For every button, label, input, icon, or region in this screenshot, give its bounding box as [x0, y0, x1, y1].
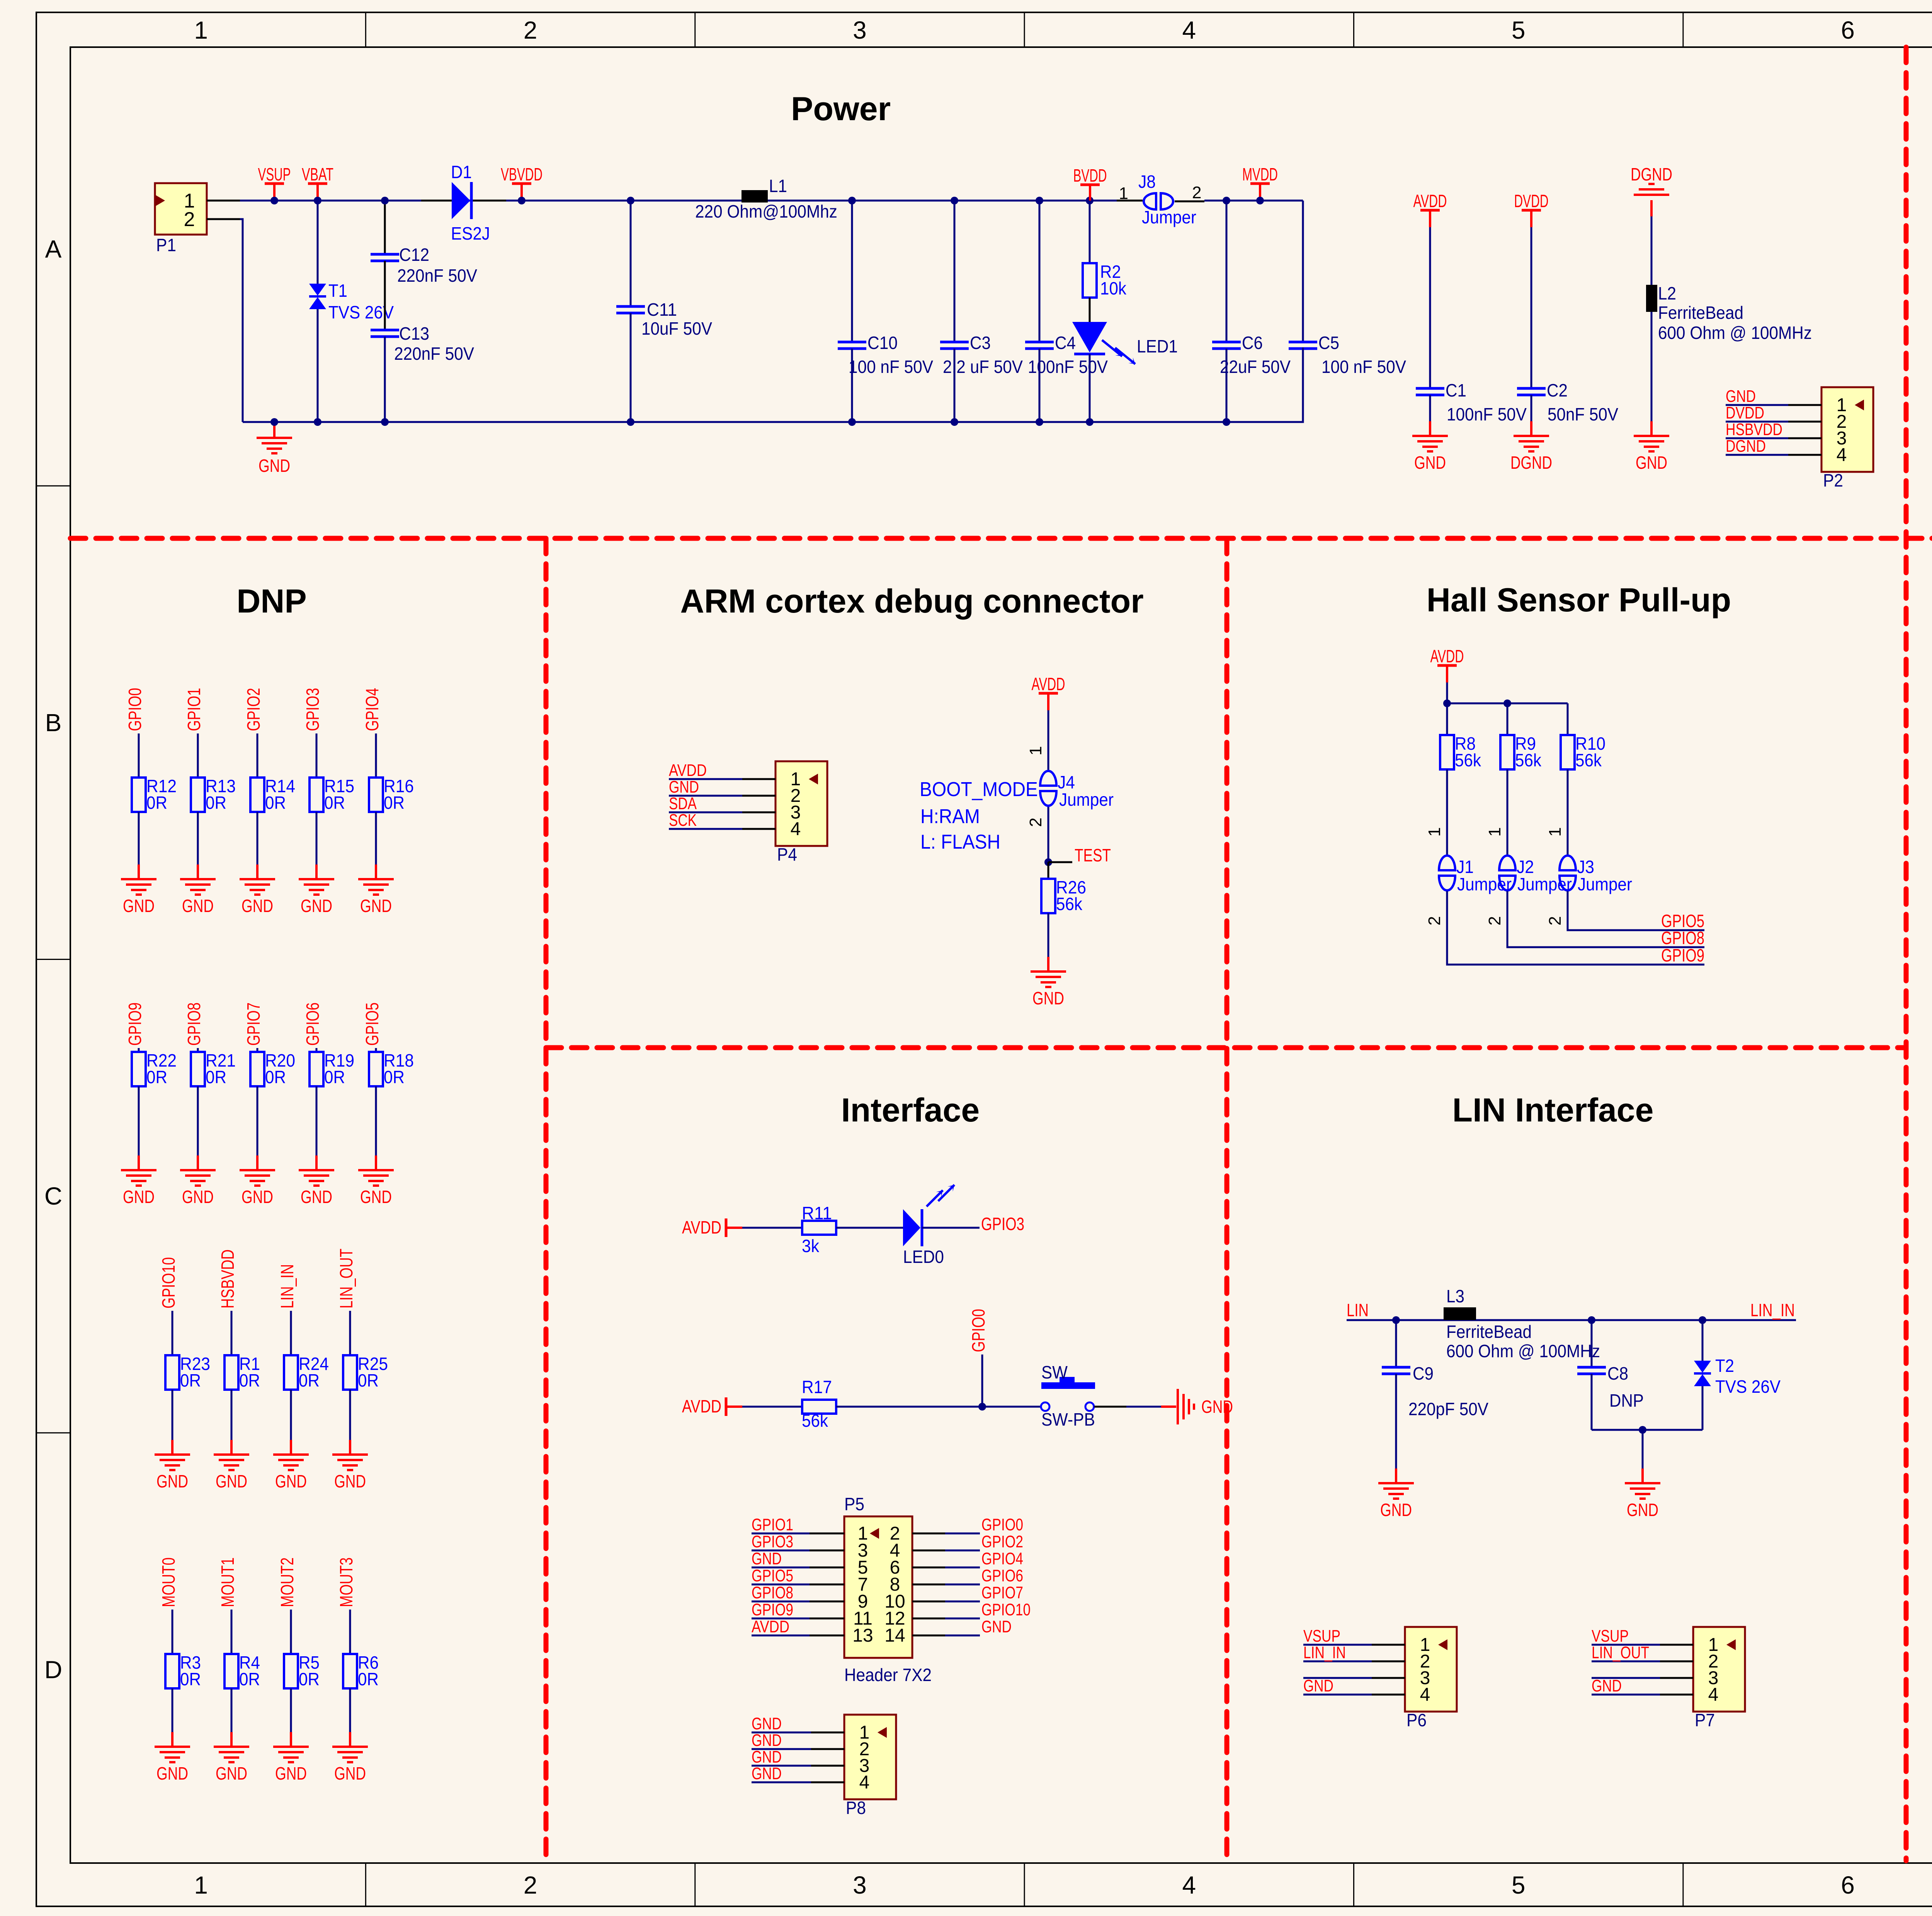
svg-text:MOUT1: MOUT1	[218, 1557, 238, 1607]
svg-text:GND: GND	[275, 1471, 307, 1491]
svg-text:2: 2	[1192, 183, 1201, 202]
svg-text:GPIO1: GPIO1	[752, 1515, 793, 1534]
svg-text:Header 7X2: Header 7X2	[844, 1665, 932, 1685]
svg-text:GND: GND	[1726, 387, 1756, 406]
svg-text:56k: 56k	[802, 1411, 828, 1431]
svg-text:GPIO9: GPIO9	[752, 1600, 793, 1619]
svg-text:HSBVDD: HSBVDD	[218, 1249, 238, 1309]
svg-text:GND: GND	[156, 1763, 188, 1783]
svg-text:50nF 50V: 50nF 50V	[1548, 404, 1618, 424]
svg-text:GPIO1: GPIO1	[184, 688, 204, 731]
svg-text:C13: C13	[399, 323, 429, 344]
svg-text:HSBVDD: HSBVDD	[1726, 420, 1782, 439]
svg-text:P2: P2	[1823, 470, 1843, 490]
svg-text:P5: P5	[844, 1494, 864, 1514]
svg-text:GND: GND	[241, 896, 273, 916]
svg-text:MVDD: MVDD	[1242, 164, 1278, 184]
svg-text:6: 6	[1841, 16, 1855, 44]
svg-text:GND: GND	[1414, 453, 1446, 473]
svg-text:GND: GND	[182, 1187, 214, 1207]
svg-text:100 nF 50V: 100 nF 50V	[849, 357, 933, 377]
svg-text:5: 5	[1512, 1871, 1526, 1899]
svg-text:R17: R17	[802, 1377, 832, 1397]
svg-text:22uF 50V: 22uF 50V	[1220, 357, 1291, 377]
svg-text:3k: 3k	[802, 1236, 820, 1256]
svg-text:4: 4	[791, 819, 801, 839]
svg-text:2: 2	[524, 16, 537, 44]
svg-text:C6: C6	[1242, 333, 1263, 353]
svg-text:13: 13	[852, 1625, 873, 1646]
svg-text:Jumper: Jumper	[1457, 874, 1512, 894]
svg-text:1: 1	[1026, 746, 1045, 756]
svg-text:600 Ohm @ 100MHz: 600 Ohm @ 100MHz	[1446, 1341, 1600, 1361]
svg-text:MOUT3: MOUT3	[336, 1557, 356, 1607]
svg-text:220pF 50V: 220pF 50V	[1408, 1399, 1488, 1419]
svg-text:DNP: DNP	[1609, 1390, 1644, 1411]
svg-text:600 Ohm @ 100MHz: 600 Ohm @ 100MHz	[1658, 323, 1812, 343]
svg-text:DGND: DGND	[1631, 164, 1672, 184]
svg-text:VBVDD: VBVDD	[501, 164, 543, 184]
svg-text:Power: Power	[791, 90, 891, 128]
svg-text:MOUT0: MOUT0	[158, 1557, 179, 1607]
svg-text:VSUP: VSUP	[258, 164, 291, 184]
svg-text:GND: GND	[156, 1471, 188, 1491]
svg-text:P6: P6	[1406, 1710, 1427, 1730]
svg-text:T2: T2	[1715, 1356, 1734, 1376]
svg-text:GND: GND	[275, 1763, 307, 1783]
svg-text:0R: 0R	[358, 1370, 379, 1390]
svg-text:GPIO7: GPIO7	[981, 1583, 1023, 1602]
svg-text:GPIO0: GPIO0	[981, 1515, 1023, 1534]
svg-text:6: 6	[1841, 1871, 1855, 1899]
svg-text:GND: GND	[216, 1763, 247, 1783]
svg-text:LED1: LED1	[1137, 336, 1178, 356]
svg-text:0R: 0R	[384, 1067, 405, 1087]
svg-text:FerriteBead: FerriteBead	[1658, 303, 1743, 323]
svg-text:10k: 10k	[1100, 278, 1127, 298]
svg-text:P7: P7	[1695, 1710, 1715, 1730]
svg-text:GND: GND	[182, 896, 214, 916]
svg-text:P8: P8	[846, 1798, 866, 1818]
svg-text:AVDD: AVDD	[752, 1617, 789, 1636]
svg-text:GND: GND	[1380, 1500, 1412, 1520]
svg-text:220nF 50V: 220nF 50V	[397, 265, 477, 286]
svg-text:AVDD: AVDD	[1413, 191, 1447, 211]
svg-text:Jumper: Jumper	[1517, 874, 1572, 894]
svg-text:0R: 0R	[206, 793, 226, 813]
svg-text:GND: GND	[123, 1187, 155, 1207]
svg-text:Interface: Interface	[841, 1092, 980, 1129]
svg-text:GND: GND	[1636, 453, 1667, 473]
svg-text:L2: L2	[1658, 283, 1676, 303]
svg-text:LIN_IN: LIN_IN	[1303, 1643, 1346, 1662]
svg-text:C: C	[44, 1182, 62, 1210]
svg-text:DVDD: DVDD	[1726, 403, 1764, 422]
svg-text:B: B	[45, 709, 62, 737]
svg-text:GPIO7: GPIO7	[243, 1002, 264, 1046]
svg-text:GPIO10: GPIO10	[158, 1257, 179, 1309]
svg-text:GPIO2: GPIO2	[981, 1532, 1023, 1551]
svg-text:L3: L3	[1446, 1286, 1464, 1306]
svg-text:C5: C5	[1318, 333, 1339, 353]
svg-text:GND: GND	[752, 1731, 782, 1750]
svg-text:GPIO8: GPIO8	[184, 1002, 204, 1046]
svg-text:GPIO5: GPIO5	[752, 1566, 793, 1585]
svg-text:AVDD: AVDD	[682, 1217, 721, 1237]
svg-text:GND: GND	[669, 778, 699, 796]
svg-text:0R: 0R	[384, 793, 405, 813]
svg-text:0R: 0R	[239, 1669, 260, 1689]
svg-text:DGND: DGND	[1726, 437, 1766, 456]
svg-text:GND: GND	[1627, 1500, 1658, 1520]
svg-text:GND: GND	[334, 1471, 366, 1491]
svg-text:L1: L1	[769, 176, 787, 196]
svg-text:L: FLASH: L: FLASH	[920, 831, 1000, 853]
svg-text:GPIO6: GPIO6	[981, 1566, 1023, 1585]
svg-text:GND: GND	[259, 456, 290, 476]
svg-text:C4: C4	[1055, 333, 1076, 353]
svg-text:1: 1	[1546, 827, 1565, 837]
svg-text:AVDD: AVDD	[669, 761, 707, 780]
svg-text:SDA: SDA	[669, 794, 697, 813]
svg-text:LIN Interface: LIN Interface	[1452, 1092, 1654, 1129]
svg-text:56k: 56k	[1455, 750, 1481, 770]
svg-text:LIN_OUT: LIN_OUT	[336, 1249, 356, 1309]
svg-text:3: 3	[853, 1871, 867, 1899]
svg-text:4: 4	[1708, 1685, 1719, 1705]
svg-text:TEST: TEST	[1075, 845, 1111, 865]
svg-text:0R: 0R	[180, 1370, 201, 1390]
svg-text:GND: GND	[752, 1764, 782, 1783]
svg-text:LED0: LED0	[903, 1247, 944, 1267]
svg-text:GPIO6: GPIO6	[303, 1002, 323, 1046]
svg-text:GND: GND	[1201, 1397, 1233, 1417]
svg-text:TVS 26V: TVS 26V	[1715, 1377, 1781, 1397]
svg-text:C8: C8	[1607, 1363, 1628, 1383]
svg-text:BOOT_MODE: BOOT_MODE	[920, 778, 1038, 801]
svg-text:AVDD: AVDD	[1032, 674, 1065, 694]
svg-text:GPIO5: GPIO5	[362, 1002, 382, 1046]
svg-text:GND: GND	[334, 1763, 366, 1783]
svg-text:DNP: DNP	[236, 583, 307, 620]
svg-text:4: 4	[859, 1772, 870, 1793]
svg-text:Hall Sensor Pull-up: Hall Sensor Pull-up	[1427, 582, 1731, 619]
svg-text:0R: 0R	[324, 1067, 345, 1087]
svg-text:1: 1	[1485, 827, 1504, 837]
svg-text:2: 2	[524, 1871, 537, 1899]
svg-text:GND: GND	[752, 1748, 782, 1766]
svg-text:GND: GND	[1032, 988, 1064, 1008]
svg-text:AVDD: AVDD	[1430, 646, 1464, 666]
svg-text:Jumper: Jumper	[1578, 874, 1632, 894]
svg-text:GND: GND	[1303, 1676, 1333, 1695]
svg-text:LIN_IN: LIN_IN	[277, 1264, 297, 1309]
svg-text:0R: 0R	[358, 1669, 379, 1689]
svg-text:0R: 0R	[239, 1370, 260, 1390]
svg-text:3: 3	[853, 16, 867, 44]
svg-text:GPIO3: GPIO3	[752, 1532, 793, 1551]
svg-text:Jumper: Jumper	[1142, 207, 1196, 227]
svg-text:0R: 0R	[206, 1067, 226, 1087]
svg-text:FerriteBead: FerriteBead	[1446, 1322, 1532, 1342]
svg-text:D: D	[44, 1656, 62, 1683]
svg-text:0R: 0R	[324, 793, 345, 813]
svg-text:GND: GND	[981, 1617, 1012, 1636]
svg-text:SW-PB: SW-PB	[1041, 1409, 1095, 1429]
svg-text:GPIO9: GPIO9	[125, 1002, 145, 1046]
svg-text:GPIO0: GPIO0	[125, 688, 145, 731]
svg-text:56k: 56k	[1575, 750, 1602, 770]
svg-text:GND: GND	[360, 896, 392, 916]
svg-text:C12: C12	[399, 245, 429, 265]
svg-text:GPIO3: GPIO3	[981, 1214, 1024, 1234]
svg-text:P1: P1	[156, 235, 176, 255]
svg-text:GPIO9: GPIO9	[1661, 945, 1704, 965]
svg-text:GND: GND	[1592, 1676, 1622, 1695]
svg-text:1: 1	[1119, 184, 1128, 203]
svg-text:1: 1	[194, 1871, 208, 1899]
svg-text:C9: C9	[1413, 1363, 1434, 1383]
svg-text:D1: D1	[451, 162, 472, 182]
svg-text:1: 1	[1425, 827, 1444, 837]
svg-text:10uF 50V: 10uF 50V	[641, 318, 712, 339]
svg-text:GPIO8: GPIO8	[752, 1583, 793, 1602]
svg-text:56k: 56k	[1515, 750, 1542, 770]
svg-text:5: 5	[1512, 16, 1526, 44]
svg-text:0R: 0R	[146, 1067, 167, 1087]
svg-text:1: 1	[194, 16, 208, 44]
svg-text:AVDD: AVDD	[682, 1396, 721, 1416]
svg-text:GPIO10: GPIO10	[981, 1600, 1031, 1619]
svg-text:2: 2	[1485, 916, 1504, 926]
svg-text:Jumper: Jumper	[1059, 790, 1114, 810]
svg-text:LIN_OUT: LIN_OUT	[1592, 1643, 1649, 1662]
svg-text:C10: C10	[867, 333, 898, 353]
svg-text:MOUT2: MOUT2	[277, 1557, 297, 1607]
svg-text:2: 2	[184, 208, 195, 231]
svg-text:0R: 0R	[265, 1067, 286, 1087]
svg-text:0R: 0R	[299, 1370, 320, 1390]
svg-text:4: 4	[1420, 1685, 1430, 1705]
svg-text:GND: GND	[123, 896, 155, 916]
svg-text:T1: T1	[328, 281, 347, 301]
svg-text:J8: J8	[1138, 172, 1156, 192]
svg-text:4: 4	[1182, 16, 1196, 44]
svg-text:GPIO4: GPIO4	[362, 688, 382, 731]
svg-text:GPIO0: GPIO0	[968, 1309, 988, 1352]
svg-text:LIN: LIN	[1347, 1300, 1369, 1320]
svg-text:A: A	[45, 235, 62, 263]
svg-text:220 Ohm@100Mhz: 220 Ohm@100Mhz	[695, 201, 837, 221]
svg-text:ARM cortex debug connector: ARM cortex debug connector	[680, 583, 1143, 620]
svg-text:LIN_IN: LIN_IN	[1750, 1300, 1795, 1320]
svg-text:VBAT: VBAT	[302, 164, 333, 184]
svg-text:GPIO3: GPIO3	[303, 688, 323, 731]
svg-text:SW: SW	[1041, 1362, 1068, 1382]
svg-text:4: 4	[1182, 1871, 1196, 1899]
svg-text:2: 2	[1546, 916, 1565, 926]
svg-text:GND: GND	[360, 1187, 392, 1207]
svg-text:DVDD: DVDD	[1514, 191, 1549, 211]
svg-text:C3: C3	[970, 333, 991, 353]
svg-text:GPIO4: GPIO4	[981, 1549, 1023, 1568]
svg-text:H:RAM: H:RAM	[920, 805, 980, 828]
svg-text:2: 2	[1026, 818, 1045, 827]
svg-text:0R: 0R	[146, 793, 167, 813]
svg-text:SCK: SCK	[669, 811, 697, 830]
svg-text:R11: R11	[802, 1203, 832, 1223]
svg-text:0R: 0R	[180, 1669, 201, 1689]
svg-text:VSUP: VSUP	[1592, 1627, 1629, 1645]
svg-text:C1: C1	[1446, 380, 1466, 400]
svg-text:0R: 0R	[265, 793, 286, 813]
svg-text:100nF 50V: 100nF 50V	[1447, 404, 1527, 424]
svg-text:4: 4	[1837, 445, 1847, 465]
svg-text:GND: GND	[216, 1471, 247, 1491]
svg-text:100 nF 50V: 100 nF 50V	[1321, 357, 1406, 377]
svg-text:VSUP: VSUP	[1303, 1627, 1340, 1645]
svg-text:GND: GND	[752, 1549, 782, 1568]
svg-text:C2: C2	[1547, 380, 1568, 400]
svg-text:DGND: DGND	[1510, 453, 1552, 473]
svg-text:14: 14	[884, 1625, 905, 1646]
svg-text:GND: GND	[301, 1187, 332, 1207]
svg-text:P4: P4	[777, 844, 797, 864]
svg-text:C11: C11	[647, 299, 677, 320]
svg-text:56k: 56k	[1056, 894, 1083, 914]
svg-text:BVDD: BVDD	[1073, 165, 1107, 185]
svg-text:0R: 0R	[299, 1669, 320, 1689]
svg-text:2: 2	[1425, 916, 1444, 926]
svg-text:ES2J: ES2J	[451, 223, 490, 243]
svg-text:GND: GND	[301, 896, 332, 916]
svg-text:GND: GND	[241, 1187, 273, 1207]
svg-text:GND: GND	[752, 1714, 782, 1733]
svg-text:GPIO2: GPIO2	[243, 688, 264, 731]
svg-text:220nF 50V: 220nF 50V	[394, 344, 474, 364]
